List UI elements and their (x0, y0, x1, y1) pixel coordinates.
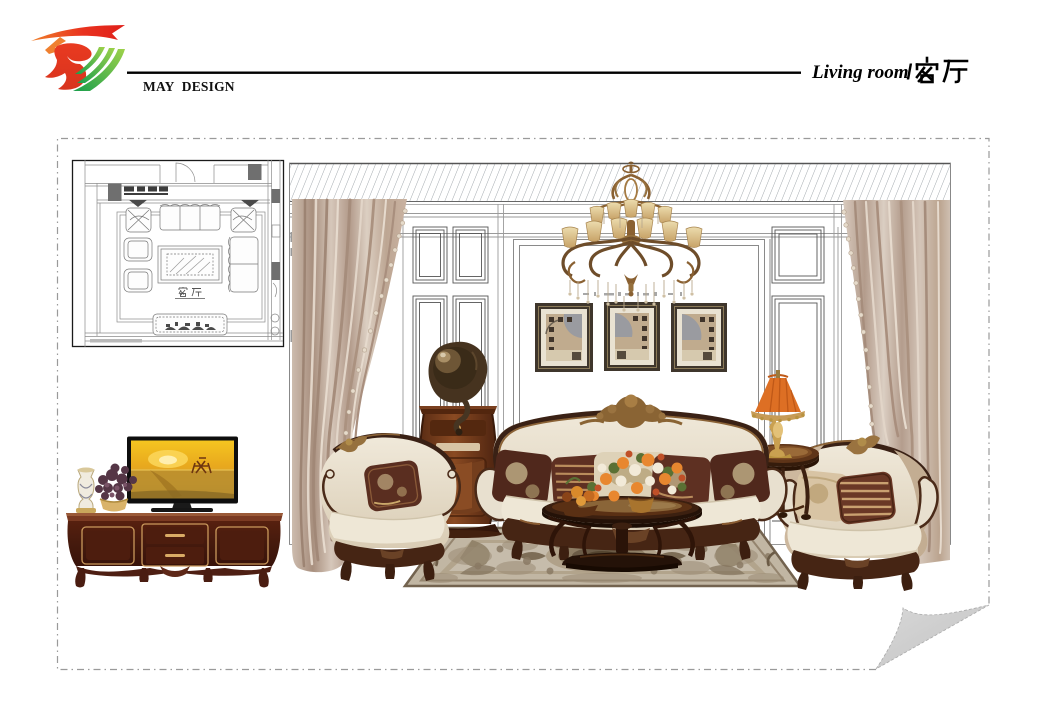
svg-text:MAY DESIGN: MAY DESIGN (143, 79, 235, 94)
svg-text:Living room: Living room (811, 62, 909, 83)
svg-text:/: / (907, 61, 913, 84)
